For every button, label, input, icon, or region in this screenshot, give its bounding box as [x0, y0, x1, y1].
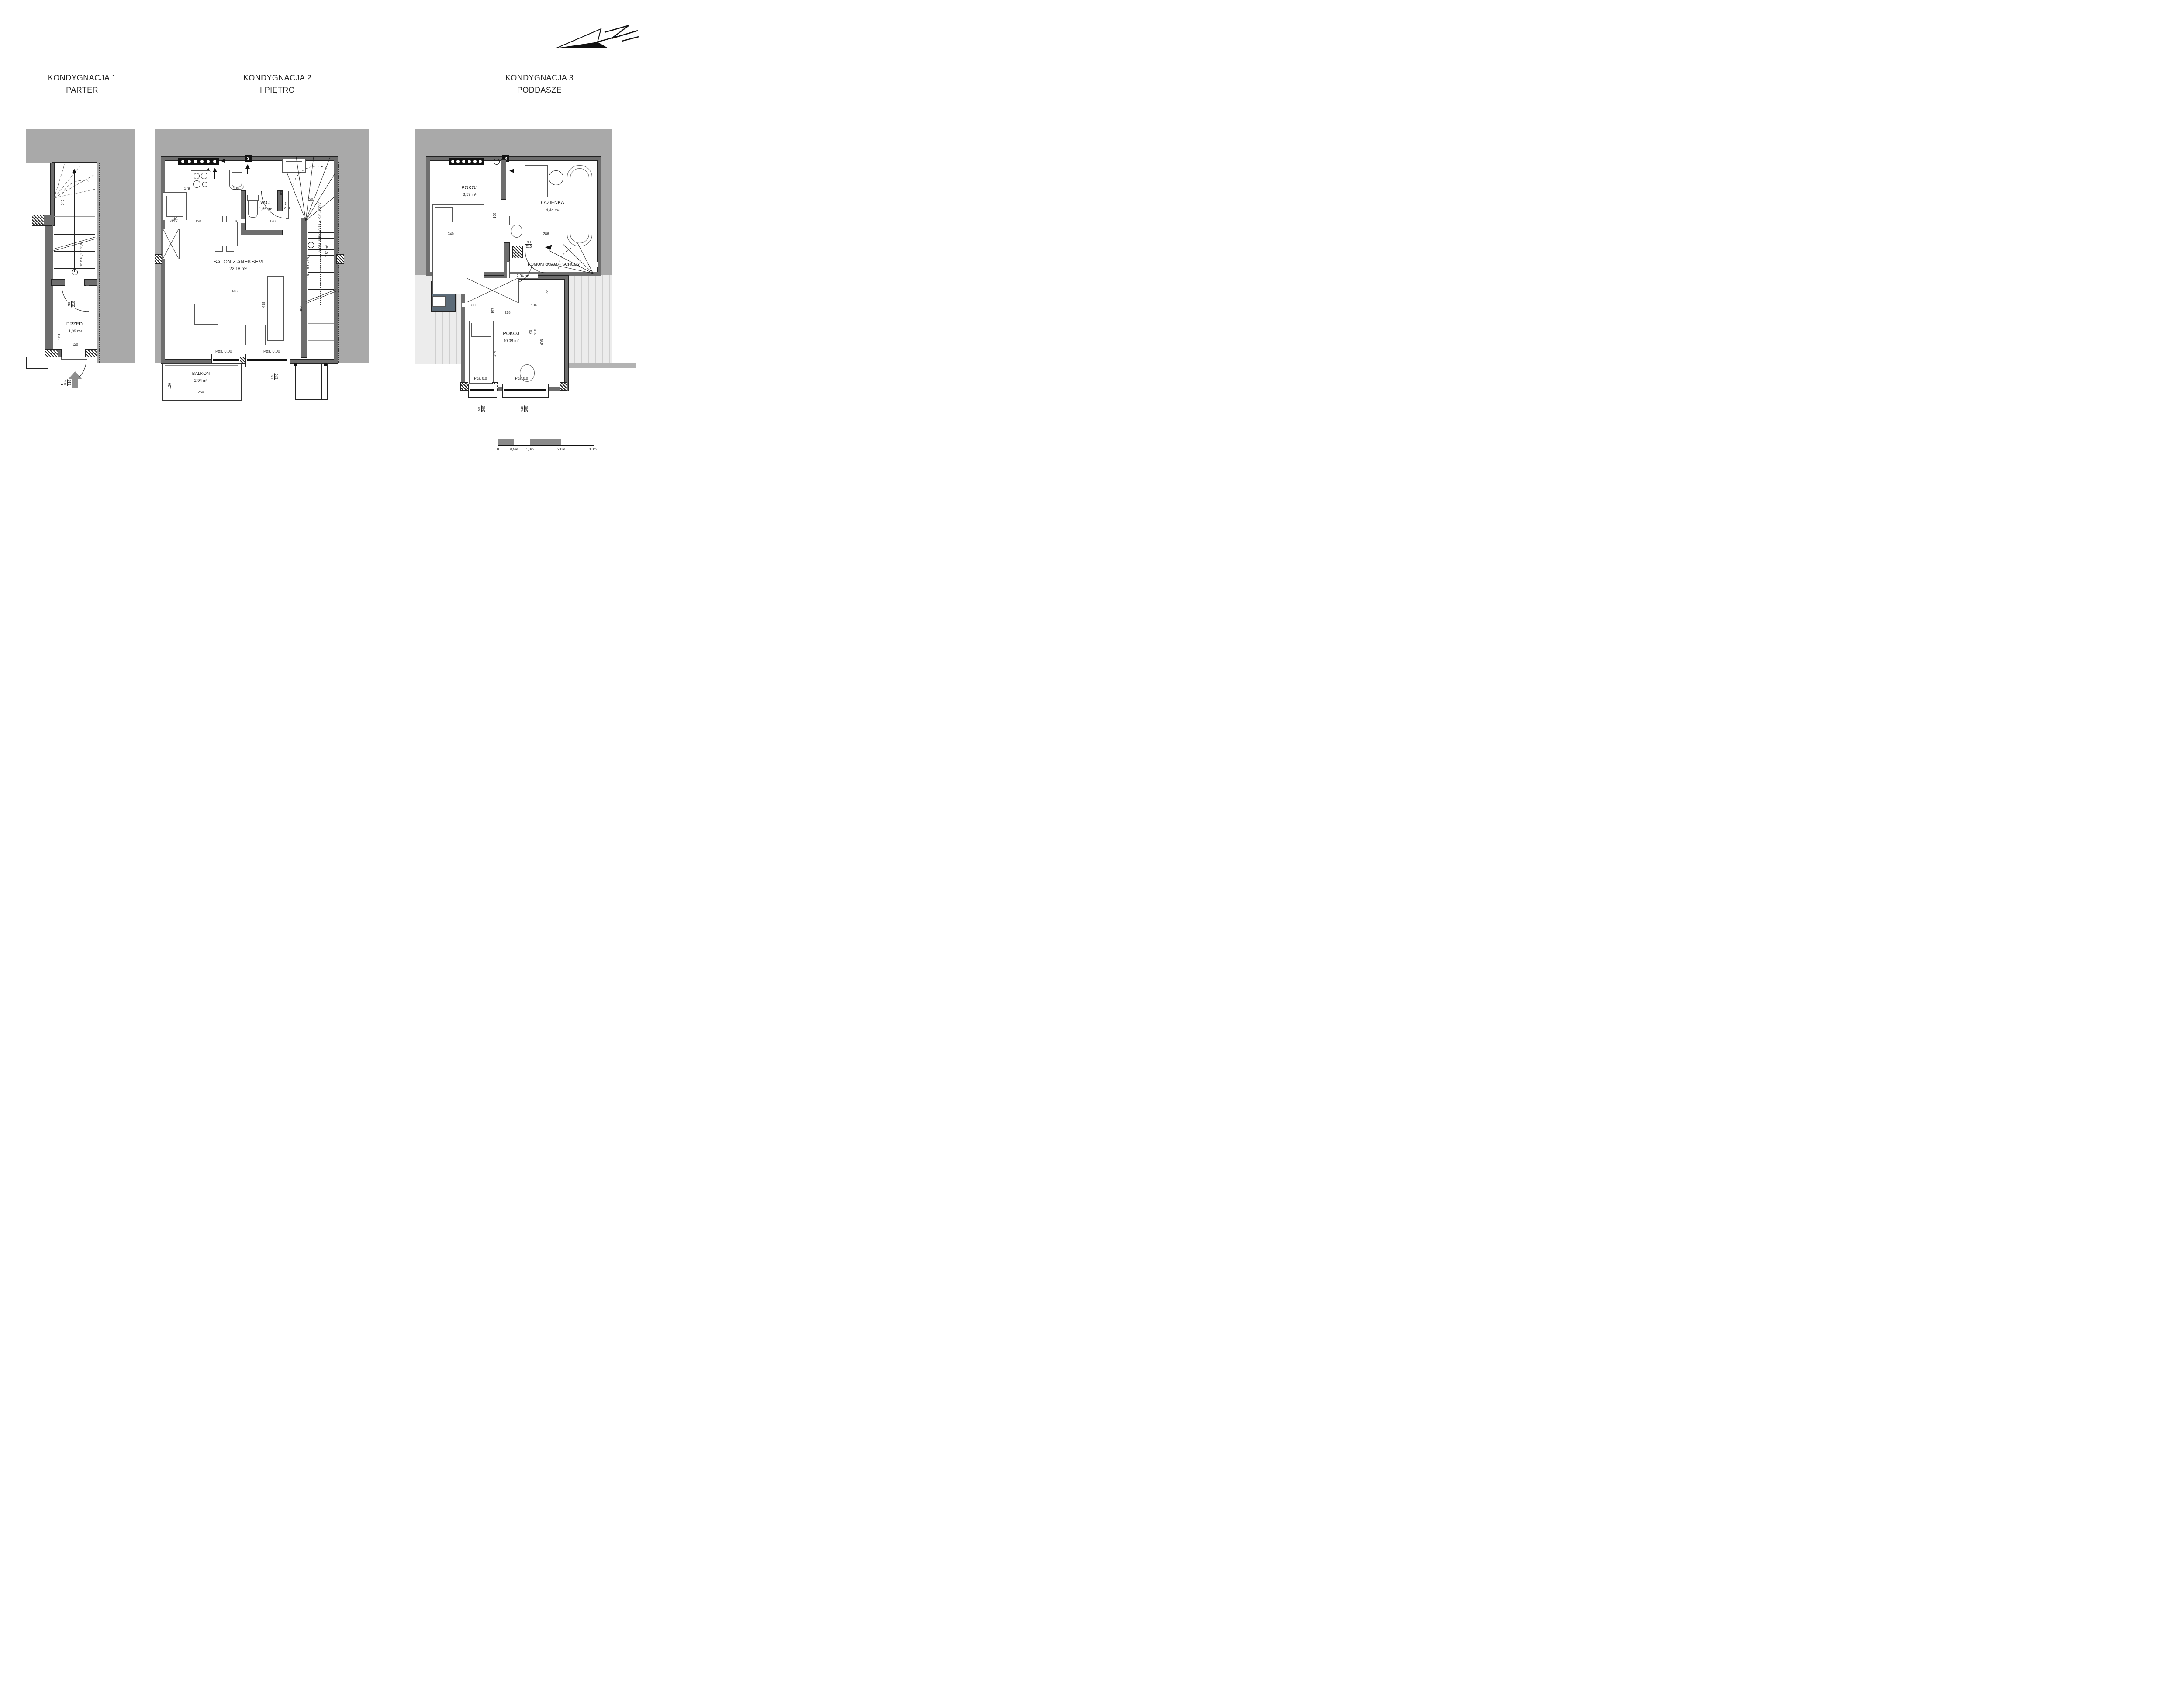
radiator-strip — [178, 158, 219, 165]
floor1-title-line1: KONDYGNACJA 1 — [25, 73, 139, 83]
room-area-salon: 22,18 m² — [188, 267, 288, 271]
dimension: 286 — [532, 232, 560, 236]
dimension-line — [164, 395, 238, 395]
dimension: 340 — [437, 232, 465, 236]
window-dimension: 90200 — [477, 405, 486, 412]
stair-dimension: 16 x 18,1 x 23,8 — [306, 255, 310, 278]
floor3-title-line1: KONDYGNACJA 3 — [483, 73, 596, 83]
dimension: 459 — [262, 302, 266, 308]
neighbor-mass — [26, 129, 135, 163]
level-note: Pos. 0,0 — [505, 377, 538, 381]
dimension: 135 — [545, 290, 549, 295]
dimension: 416 — [225, 289, 244, 293]
floor1-title-line2: PARTER — [25, 86, 139, 95]
dimension: 250 — [182, 390, 220, 394]
door-dimension: 90210 — [525, 240, 532, 249]
wall — [301, 218, 307, 357]
room-area-balkon: 2,94 m² — [173, 378, 229, 383]
floor2-title-line2: I PIĘTRO — [221, 86, 334, 95]
chair — [226, 246, 234, 252]
level-note: Pos. 0,00 — [253, 349, 290, 353]
dining-table — [210, 222, 238, 246]
chair — [215, 216, 223, 222]
room-label-przed: PRZED. — [53, 322, 97, 327]
stair-treads-dashed — [54, 205, 95, 228]
dimension: 100 — [227, 187, 245, 190]
window — [26, 357, 48, 369]
scale-label: 1,0m — [523, 447, 536, 451]
room-area-przed: 1,39 m² — [53, 329, 97, 333]
pillow — [471, 323, 491, 337]
wall — [52, 280, 65, 285]
roof-plane — [568, 275, 612, 364]
entrance-arrow-icon — [72, 379, 78, 388]
winder-stair — [545, 243, 594, 274]
marker-circle — [494, 159, 500, 165]
coffee-table — [194, 304, 218, 325]
room-label-pokoj2: POKÓJ — [487, 331, 535, 336]
boundary-dashed-line — [99, 163, 100, 363]
floor3-title-line2: PODDASZE — [483, 86, 596, 95]
stair-dimension: 16 x 18,1 x 23,8 — [79, 243, 83, 267]
direction-arrow-icon — [509, 169, 514, 173]
dimension: 300 — [462, 303, 483, 307]
washbasin — [549, 170, 563, 185]
north-arrow-icon — [556, 23, 641, 52]
floorplan-sheet: KONDYGNACJA 1 PARTER 16 x 18,1 x 23,8 14… — [0, 0, 675, 479]
wall-section-hatch — [32, 215, 44, 225]
room-area-pokoj1: 8,59 m² — [443, 192, 496, 197]
sofa-corner — [245, 325, 266, 345]
room-area-komunikacja: 7,51 m² — [325, 245, 329, 257]
stair-start-marker — [72, 269, 78, 275]
dimension: 120 — [263, 219, 282, 223]
stair-direction-arrow-icon — [72, 169, 76, 173]
wall — [501, 160, 506, 199]
dimension: 278 — [496, 311, 519, 315]
neighbor-mass — [97, 163, 135, 363]
dimension-line — [53, 347, 97, 347]
stair-start-marker — [308, 242, 314, 248]
scale-label: 0,5m — [508, 447, 521, 451]
room-label-komunikacja: KOMUNIKACJA + SCHODY — [318, 202, 322, 252]
floor2-title-line1: KONDYGNACJA 2 — [221, 73, 334, 83]
wall-section-hatch — [86, 350, 97, 357]
dimension: 120 — [57, 334, 61, 340]
window-dimension: 140240 — [270, 373, 279, 380]
window-dimension: 140200 — [520, 405, 529, 412]
roof-edge — [568, 363, 636, 368]
pillow — [435, 207, 453, 222]
scale-label: 0 — [494, 447, 502, 451]
radiator-strip — [449, 158, 484, 165]
stair-treads-dashed — [308, 307, 334, 356]
entry-door-dimension: 105210 — [63, 379, 72, 386]
entrance-arrow-icon — [68, 371, 82, 379]
level-note: Pos. 0,0 — [464, 377, 497, 381]
door-dimension: 90210 — [67, 300, 76, 308]
boundary-dashed-line — [636, 273, 636, 366]
wall — [45, 225, 53, 357]
chimney — [513, 246, 522, 258]
scale-label: 3,0m — [586, 447, 599, 451]
radiator-dot-icon — [181, 160, 184, 163]
door-leaf — [86, 285, 89, 312]
room-label-balkon: BALKON — [173, 371, 229, 376]
stair-walk-line — [74, 173, 75, 272]
dimension-line — [461, 308, 545, 308]
dimension: 179 — [178, 187, 196, 190]
radiator-dot-icon — [451, 160, 454, 163]
wall-section-hatch — [45, 350, 58, 357]
dimension: 140 — [61, 200, 65, 205]
dimension-line — [165, 294, 302, 294]
dimension: 120 — [189, 219, 208, 223]
dimension: 168 — [493, 213, 497, 218]
wall — [241, 230, 282, 235]
direction-arrow-icon — [221, 159, 225, 163]
wall-section-hatch — [560, 383, 567, 390]
dimension: 120 — [168, 383, 172, 389]
chair — [226, 216, 234, 222]
heater-icon: ✳ — [166, 214, 183, 225]
dimension-line — [466, 315, 562, 315]
entry-door-leaf — [61, 357, 87, 360]
room-area-pokoj2: 10,08 m² — [487, 339, 535, 343]
scale-label: 2,0m — [555, 447, 568, 451]
wall — [85, 280, 97, 285]
wall-section-hatch — [337, 255, 344, 263]
up-arrow-icon — [213, 168, 217, 172]
wall — [97, 163, 97, 357]
room-label-salon: SALON Z ANEKSEM — [188, 259, 288, 265]
dimension: 406 — [540, 339, 544, 345]
toilet — [509, 216, 524, 225]
nightstand — [432, 296, 446, 307]
dimension: 120 — [53, 343, 97, 346]
dimension-line — [432, 236, 595, 236]
wall-section-hatch — [155, 255, 162, 263]
up-arrow-icon — [245, 164, 250, 169]
wall — [52, 162, 97, 163]
wall-section-hatch — [461, 383, 468, 390]
section-marker: 3 — [245, 155, 252, 162]
railing — [295, 364, 328, 400]
dimension: 387 — [299, 306, 303, 312]
level-note: Pos. 0,00 — [205, 349, 242, 353]
dimension: 106 — [523, 303, 544, 307]
dimension: 197 — [491, 308, 495, 314]
window-mullion — [26, 362, 47, 362]
wall — [241, 191, 245, 234]
room-label-pokoj1: POKÓJ — [443, 185, 496, 190]
winder-stair — [287, 157, 336, 222]
chair — [215, 246, 223, 252]
